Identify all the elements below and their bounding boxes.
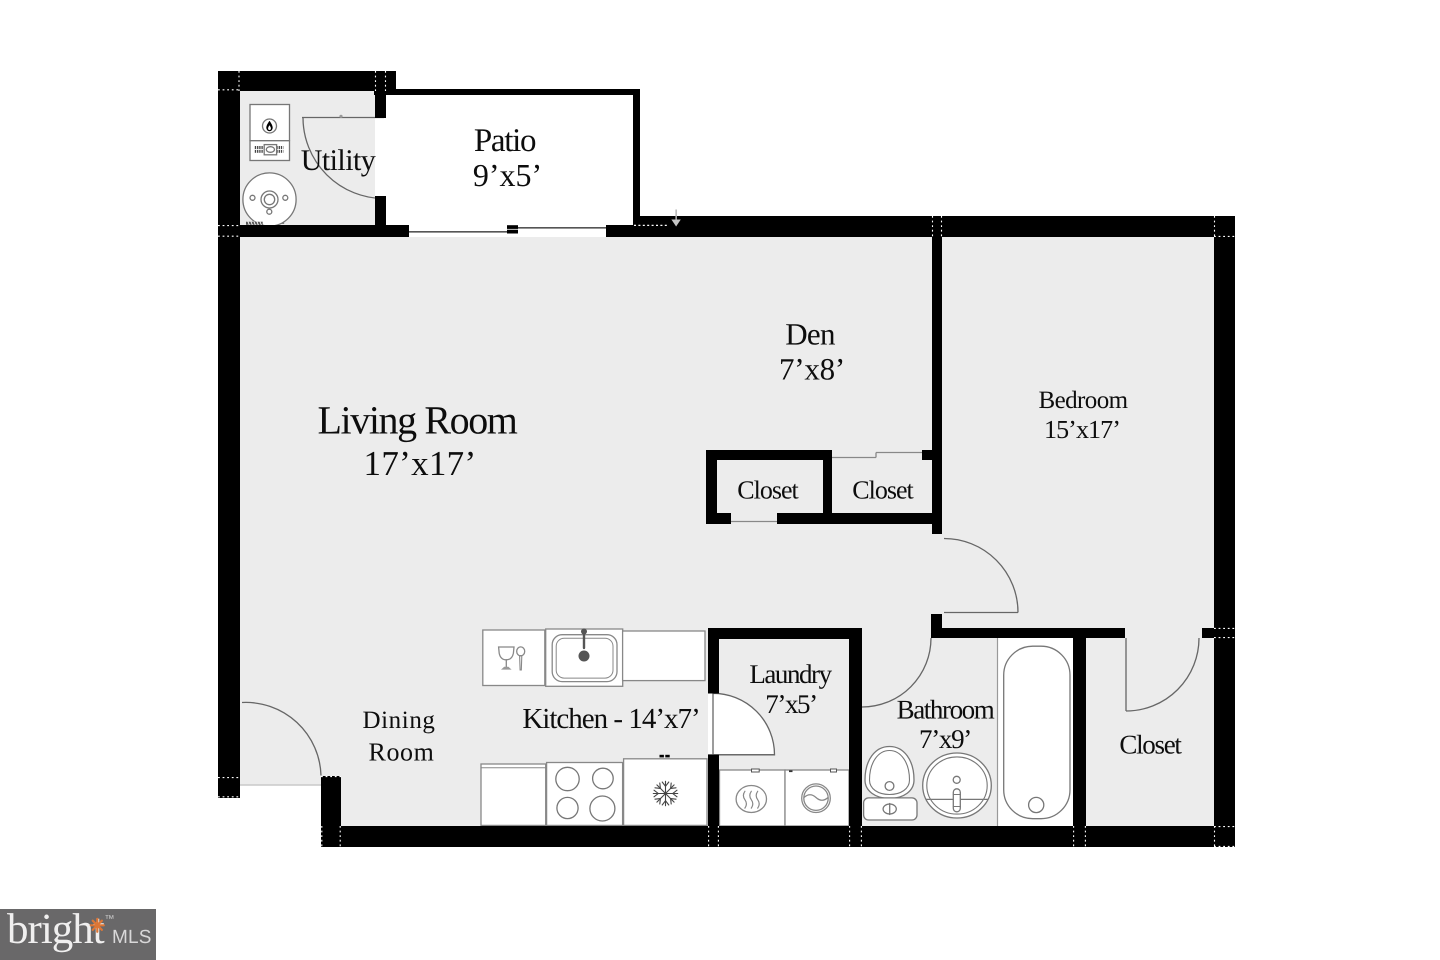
svg-text:Closet: Closet xyxy=(737,476,799,505)
svg-text:bright: bright xyxy=(7,906,105,953)
svg-text:7’x5’: 7’x5’ xyxy=(765,689,816,719)
svg-text:Bathroom: Bathroom xyxy=(897,695,995,725)
svg-text:7’x9’: 7’x9’ xyxy=(919,724,971,754)
svg-text:7’x8’: 7’x8’ xyxy=(779,352,845,387)
svg-text:Utility: Utility xyxy=(301,144,376,177)
svg-text:9’x5’: 9’x5’ xyxy=(473,157,542,193)
svg-text:Dining: Dining xyxy=(362,707,435,734)
svg-text:17’x17’: 17’x17’ xyxy=(364,444,477,483)
svg-text:Laundry: Laundry xyxy=(749,659,832,689)
svg-text:MLS: MLS xyxy=(112,927,152,948)
svg-text:Room: Room xyxy=(369,738,435,767)
svg-text:Living Room: Living Room xyxy=(317,398,517,443)
svg-text:Patio: Patio xyxy=(474,123,536,159)
svg-text:™: ™ xyxy=(105,914,115,925)
svg-text:Kitchen - 14’x7’: Kitchen - 14’x7’ xyxy=(522,703,699,735)
svg-text:15’x17’: 15’x17’ xyxy=(1044,415,1120,444)
svg-text:Bedroom: Bedroom xyxy=(1038,387,1128,414)
svg-text:Closet: Closet xyxy=(1119,730,1182,760)
svg-text:Den: Den xyxy=(785,317,836,352)
svg-text:Closet: Closet xyxy=(852,476,914,505)
